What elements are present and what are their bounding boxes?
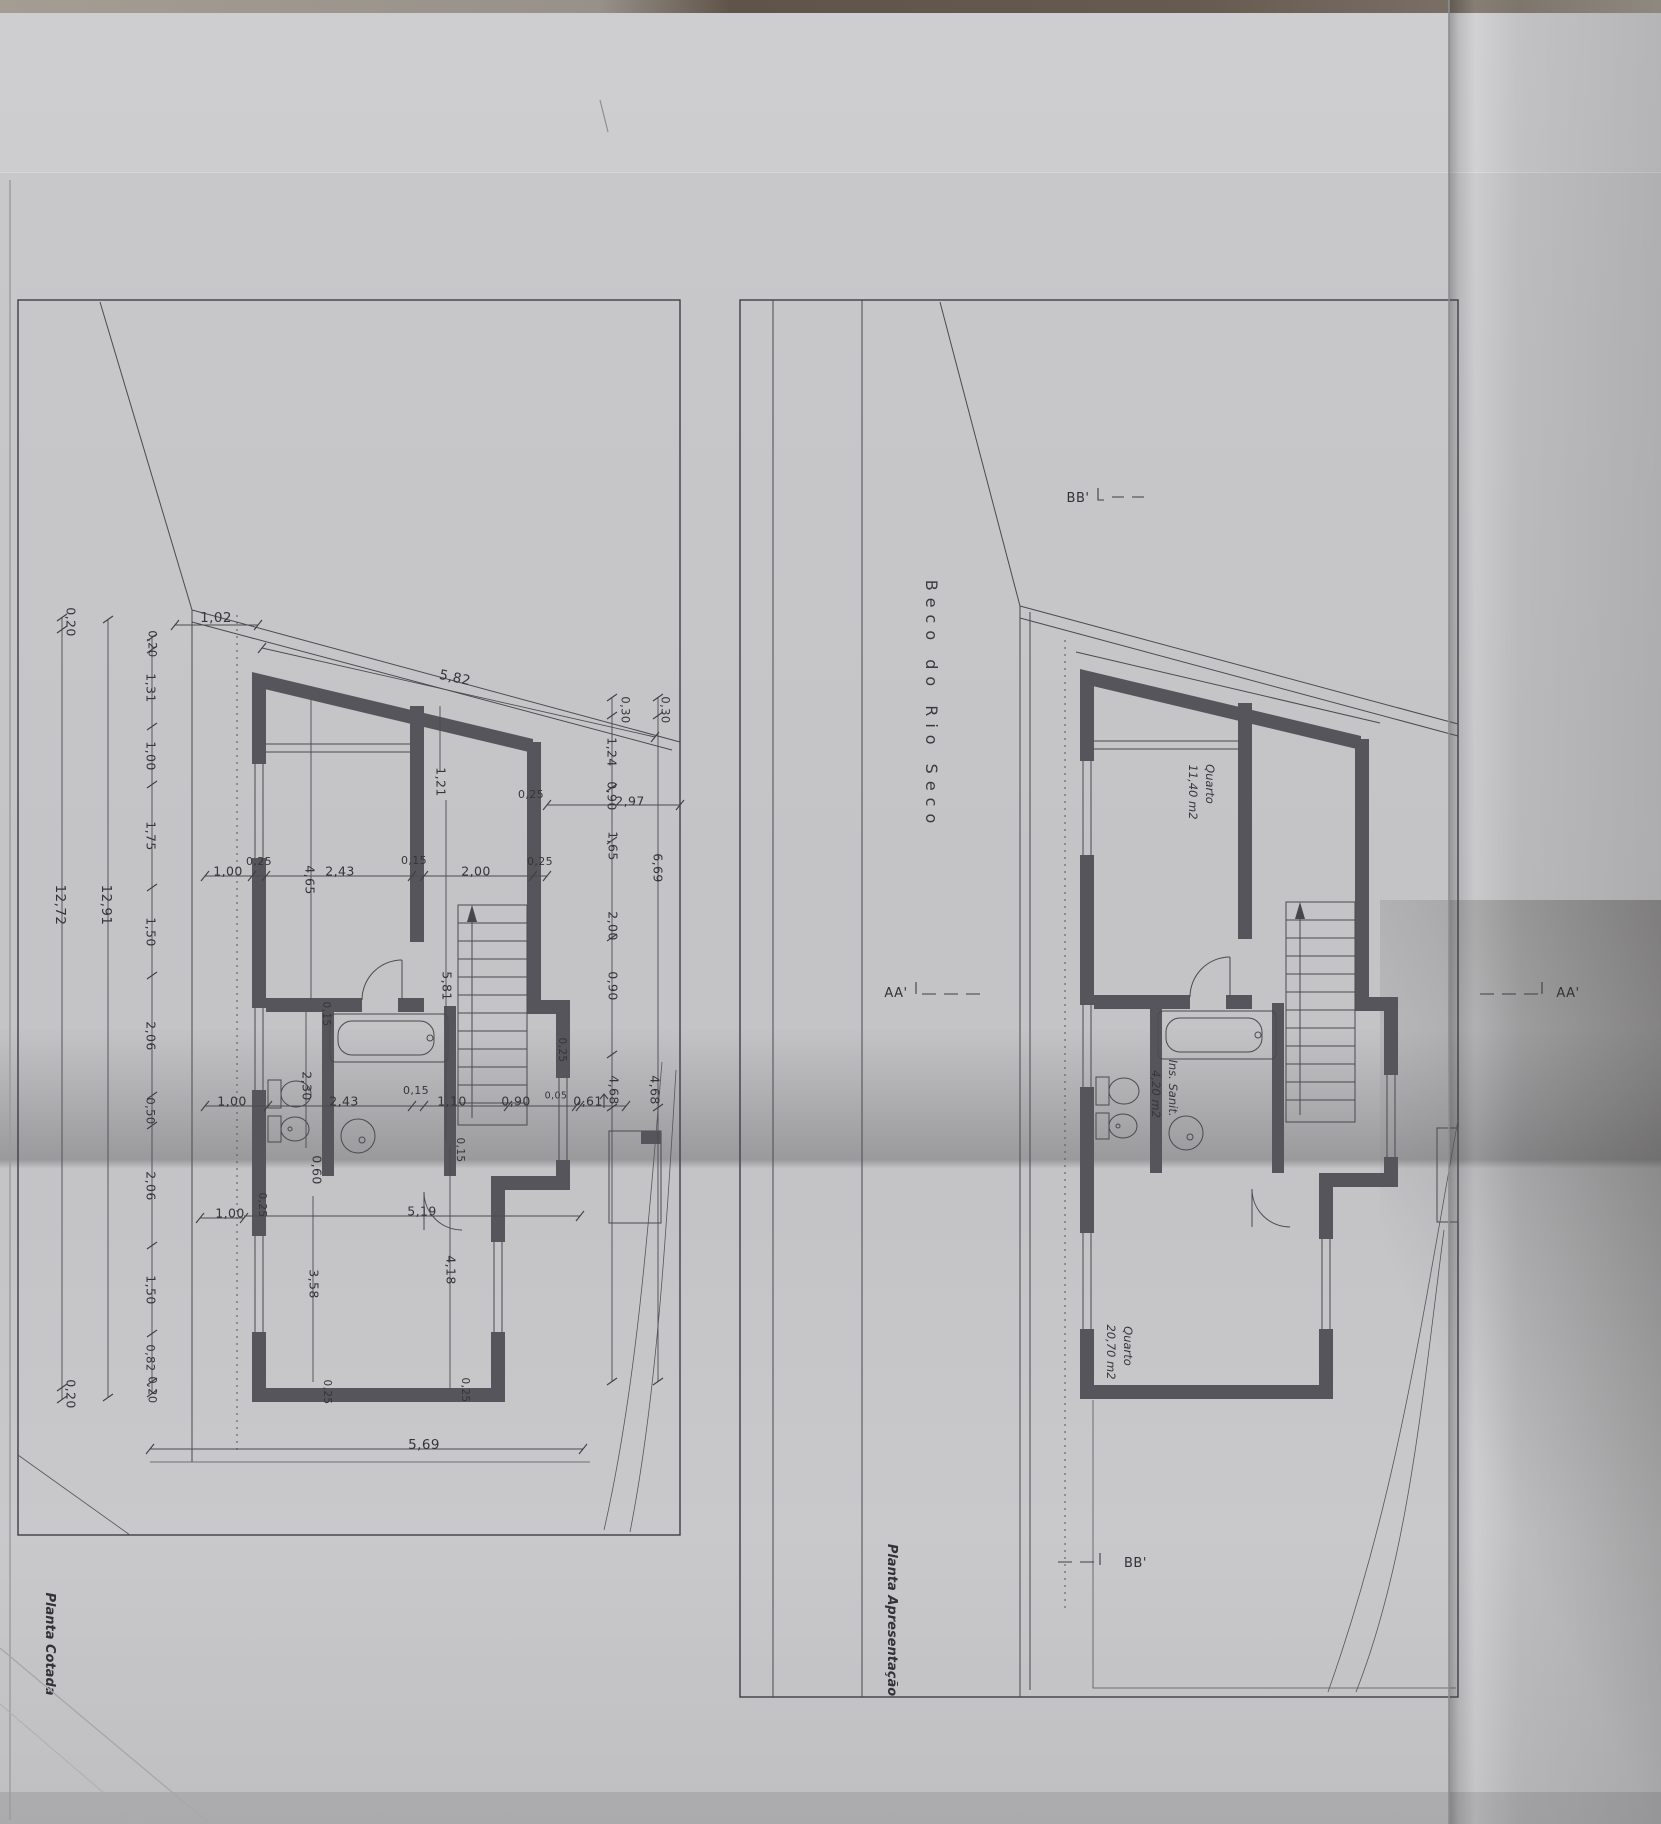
section-label-bb-bottom: BB': [1124, 1556, 1147, 1571]
dimension-label: 0,25: [256, 1193, 268, 1218]
drawing-frame: [18, 300, 680, 1535]
building-left: [252, 672, 570, 1402]
dimension-label: 0,15: [454, 1138, 466, 1163]
dimension-label: 0,30: [659, 696, 673, 723]
section-label-aa-right: AA': [1556, 986, 1579, 1001]
dimension-label: 0,20: [64, 1379, 79, 1408]
planta-apresentacao-drawing: BB' AA' AA' BB' Beco do Rio Seco Quarto …: [740, 300, 1580, 1697]
section-label-bb-top: BB': [1067, 491, 1090, 506]
scanned-drawing-sheet: 1,025,820,2012,7212,910,201,311,001,751,…: [0, 0, 1661, 1824]
dimension-label: 0,25: [556, 1038, 568, 1063]
dimension-label: 0,61: [573, 1094, 602, 1109]
dimension-label: 1,31: [144, 673, 159, 702]
room-name: Ins. Sanit.: [1166, 1060, 1180, 1117]
dimension-label: 0,30: [619, 696, 633, 723]
dimension-label: 1,21: [434, 767, 449, 796]
floorplan-drawing: 1,025,820,2012,7212,910,201,311,001,751,…: [0, 0, 1661, 1824]
dimension-label: 1,50: [144, 1275, 159, 1304]
dimension-label: 1,00: [215, 1206, 244, 1221]
room-labels: Quarto 11,40 m2 Ins. Sanit. 4,20 m2 Quar…: [1104, 764, 1217, 1379]
section-mark-bb-top: [1098, 488, 1144, 500]
room-area: 4,20 m2: [1149, 1070, 1163, 1118]
dimension-label: 0,25: [459, 1378, 471, 1403]
dimension-label: 0,05: [545, 1091, 568, 1102]
dimension-label: 5,69: [408, 1437, 440, 1453]
dimension-label: 0,25: [246, 855, 272, 868]
sheet-title-right: Planta Apresentação: [884, 1544, 899, 1696]
room-area: 20,70 m2: [1104, 1324, 1118, 1379]
left-plan-dimension-labels: 1,025,820,2012,7212,910,201,311,001,751,…: [52, 607, 673, 1453]
section-mark-bb-bottom: [1058, 1553, 1100, 1565]
terrain-line: [18, 1455, 130, 1535]
paper-creases: [0, 0, 1449, 1824]
room-area: 11,40 m2: [1186, 764, 1200, 819]
dimension-label: 0,90: [501, 1094, 530, 1109]
dimension-label: 4,68: [607, 1075, 622, 1104]
dimension-label: 5,19: [407, 1204, 436, 1219]
dimension-label: 0,15: [401, 854, 427, 867]
dimension-label: 0,15: [403, 1084, 429, 1097]
bay-outline: [609, 1131, 661, 1223]
dimension-label: 4,68: [648, 1075, 663, 1104]
dimension-label: 0,82: [144, 1344, 158, 1371]
dimension-label: 6,69: [651, 853, 666, 882]
building-right: [1080, 669, 1398, 1399]
dimension-label: 1,10: [437, 1094, 466, 1109]
dimension-label: 0,50: [144, 1097, 158, 1124]
bay-outline: [1437, 1128, 1458, 1222]
dimension-label: 2,00: [461, 864, 490, 879]
dimension-label: 2,30: [300, 1071, 315, 1100]
dimension-label: 12,91: [98, 885, 114, 926]
dimension-label: 1,00: [217, 1094, 246, 1109]
section-mark-aa-left: [916, 982, 980, 994]
dimension-label: 2,00: [606, 911, 621, 940]
dimension-label: 0,15: [320, 1002, 332, 1027]
sheet-title-left: Planta Cotada: [42, 1592, 57, 1695]
dimension-label: 0,60: [310, 1155, 325, 1184]
terrain-curve: [1356, 1230, 1444, 1692]
dimension-label: 0,25: [527, 855, 553, 868]
dimension-label: 0,90: [606, 971, 621, 1000]
dimension-label: 1,00: [144, 741, 159, 770]
dimension-label: 4,18: [444, 1255, 459, 1284]
planta-cotada-drawing: 1,025,820,2012,7212,910,201,311,001,751,…: [18, 300, 684, 1696]
dimension-label: 0,20: [146, 630, 160, 657]
room-name: Quarto: [1203, 764, 1217, 804]
dimension-label: 0,90: [605, 781, 620, 810]
dimension-label: 4,65: [303, 865, 318, 894]
section-label-aa-left: AA': [884, 986, 907, 1001]
room-name: Quarto: [1121, 1326, 1135, 1366]
patio-outline: [1093, 1400, 1456, 1688]
dimension-label: 0,25: [518, 788, 544, 801]
dimension-label: 2,06: [144, 1021, 159, 1050]
dimension-label: 2,43: [325, 864, 354, 879]
section-marks: BB' AA' AA' BB': [884, 488, 1579, 1571]
dimension-label: 3,58: [307, 1269, 322, 1298]
dimension-label: 1,75: [144, 821, 159, 850]
dimension-label: 1,65: [606, 831, 621, 860]
dimension-label: 0,25: [321, 1380, 333, 1405]
boundary-line: [940, 302, 1020, 606]
dimension-label: 5,82: [438, 667, 472, 689]
dimension-label: 5,81: [440, 971, 455, 1000]
dimension-label: 1,02: [200, 610, 232, 626]
dimension-label: 12,72: [52, 885, 68, 926]
dimension-label: 2,06: [144, 1171, 159, 1200]
dimension-label: 0,20: [146, 1376, 160, 1403]
terrain-curve: [1328, 1120, 1458, 1692]
dimension-label: 2,43: [329, 1094, 358, 1109]
dimension-label: 1,50: [144, 917, 159, 946]
dimension-label: 1,24: [605, 737, 620, 766]
street-name: Beco do Rio Seco: [922, 580, 941, 831]
boundary-line: [100, 302, 192, 610]
dimension-label: 0,20: [64, 607, 79, 636]
dimension-label: 1,00: [213, 864, 242, 879]
section-mark-aa-right: [1480, 982, 1542, 994]
